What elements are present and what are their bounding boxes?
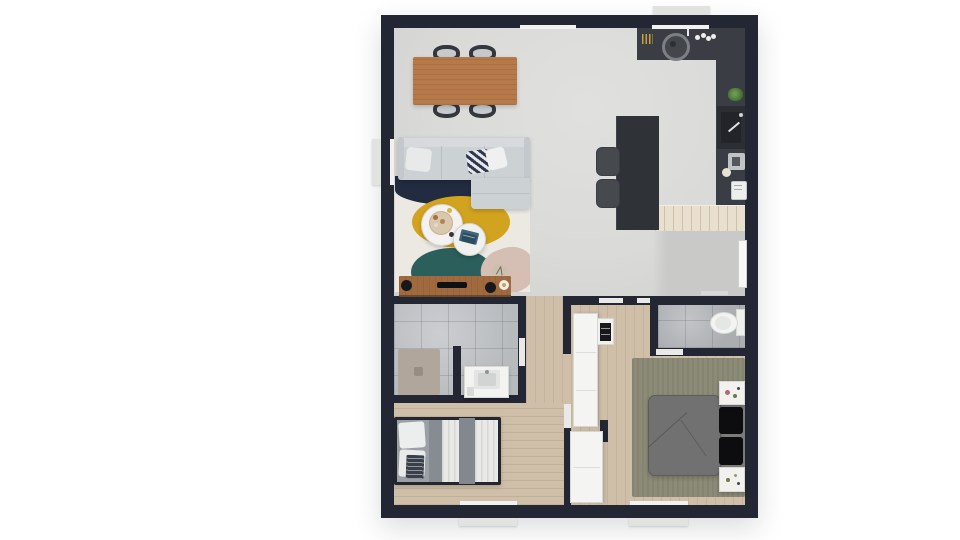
wall-living-bathroom: [394, 296, 526, 304]
bed2-sheet-gray: [429, 420, 442, 482]
hall-shelf: [597, 318, 614, 345]
front-door: [738, 240, 747, 288]
record-disc-center: [502, 283, 506, 287]
master-pillow-2: [719, 437, 743, 465]
chaise-seam: [472, 193, 529, 194]
gold-utensil-icon: [642, 34, 653, 44]
wardrobe-2: [570, 431, 603, 503]
toilet-seat: [715, 316, 731, 330]
wall-corridor-right: [563, 296, 571, 354]
toaster: [731, 181, 747, 200]
kitchen-round-sink: [662, 33, 690, 61]
entry-threshold: [701, 291, 728, 295]
hall-shelf-item: [600, 323, 611, 341]
window-frame-bottom-2: [630, 501, 688, 505]
sofa-seam-1: [441, 146, 442, 179]
coffee-table-small: [453, 223, 486, 256]
tray-food-3: [434, 223, 438, 227]
counter-jar: [722, 168, 731, 177]
shower-mat: [398, 349, 440, 395]
nightstand2-deco-dark: [737, 482, 740, 485]
wall-exterior-bottom: [381, 505, 758, 518]
wardrobe2-seam: [573, 467, 600, 468]
bar-stool-1: [596, 147, 620, 176]
window-sill-top: [653, 6, 710, 15]
wall-hall-top: [563, 296, 745, 305]
sink-vanity: [464, 366, 509, 398]
lemon-dot: [447, 208, 452, 213]
door-mark-hallway-2: [637, 298, 650, 303]
shower-drain-icon: [414, 367, 423, 376]
nightstand2-deco-green: [726, 478, 730, 482]
wardrobe1-seam-1: [576, 352, 596, 353]
sofa-arm-right: [524, 137, 530, 180]
wardrobe1-seam-2: [576, 390, 596, 391]
vanity-item: [467, 387, 474, 396]
window-sill-bottom-1: [459, 518, 517, 526]
counter-bowl-1: [695, 35, 700, 40]
nightstand-deco-dark: [737, 387, 740, 390]
plant-stem-2: [500, 267, 502, 275]
faucet-knob-icon: [739, 113, 743, 117]
door-mark-wc: [656, 349, 683, 355]
nightstand-1: [719, 381, 745, 405]
wardrobe-1: [573, 313, 598, 427]
single-bed: [394, 417, 501, 485]
plant-kitchen: [728, 88, 743, 101]
speaker-left: [401, 280, 412, 291]
master-duvet: [648, 395, 721, 476]
hall-shelf-item-line-2: [601, 334, 610, 335]
door-mark-bedroom-small: [564, 404, 571, 428]
duvet-fold-2: [680, 420, 706, 457]
nightstand-2: [719, 467, 745, 492]
speaker-right: [485, 282, 496, 293]
nightstand-deco-pink: [725, 390, 730, 395]
bed2-blanket-band: [459, 418, 475, 484]
tv: [437, 282, 467, 288]
kitchen-counter-top: [637, 28, 745, 60]
tray-food-1: [433, 215, 438, 220]
sofa-backrest: [399, 138, 529, 147]
duvet-fold-1: [648, 412, 687, 448]
window-frame-left: [390, 139, 394, 185]
window-frame-top-1: [520, 25, 576, 29]
window-sill-bottom-2: [629, 518, 688, 526]
window-frame-bottom-1: [460, 501, 517, 505]
wall-exterior-left: [381, 15, 394, 518]
bed2-pillow-1: [398, 421, 426, 449]
wall-wc-left: [650, 305, 658, 350]
throw-pillow-white-1: [405, 147, 432, 172]
nightstand-deco-green: [733, 394, 737, 398]
kitchen-island: [616, 116, 659, 230]
tray-food-2: [440, 219, 445, 224]
bar-stool-2: [596, 179, 620, 208]
tv-console: [399, 276, 511, 297]
entry-floor: [653, 230, 745, 296]
bed2-pillow-patterned: [406, 455, 425, 480]
toaster-slot-2: [734, 189, 742, 190]
door-mark-hallway: [599, 298, 623, 303]
coffee-machine-front: [732, 157, 740, 166]
master-pillow-1: [719, 407, 743, 434]
counter-bowl-4: [711, 34, 716, 39]
window-frame-top-2: [652, 25, 709, 29]
wall-shower-stub: [453, 346, 461, 403]
nightstand2-deco-sprig: [734, 474, 737, 477]
sink-drain-icon: [670, 41, 676, 47]
bed2-duvet-a: [442, 420, 459, 482]
hall-shelf-item-line-1: [601, 328, 610, 329]
vanity-faucet-icon: [485, 370, 489, 374]
vanity-basin-inner: [478, 373, 496, 386]
wood-counter: [655, 205, 745, 231]
dining-table: [413, 57, 517, 105]
toaster-slot-1: [734, 185, 742, 186]
bed2-duvet-b: [475, 420, 498, 482]
door-mark-bathroom: [519, 338, 525, 366]
floor-plan-canvas: [0, 0, 960, 540]
counter-divider-line: [687, 28, 689, 36]
sofa-arm-left: [398, 137, 404, 180]
